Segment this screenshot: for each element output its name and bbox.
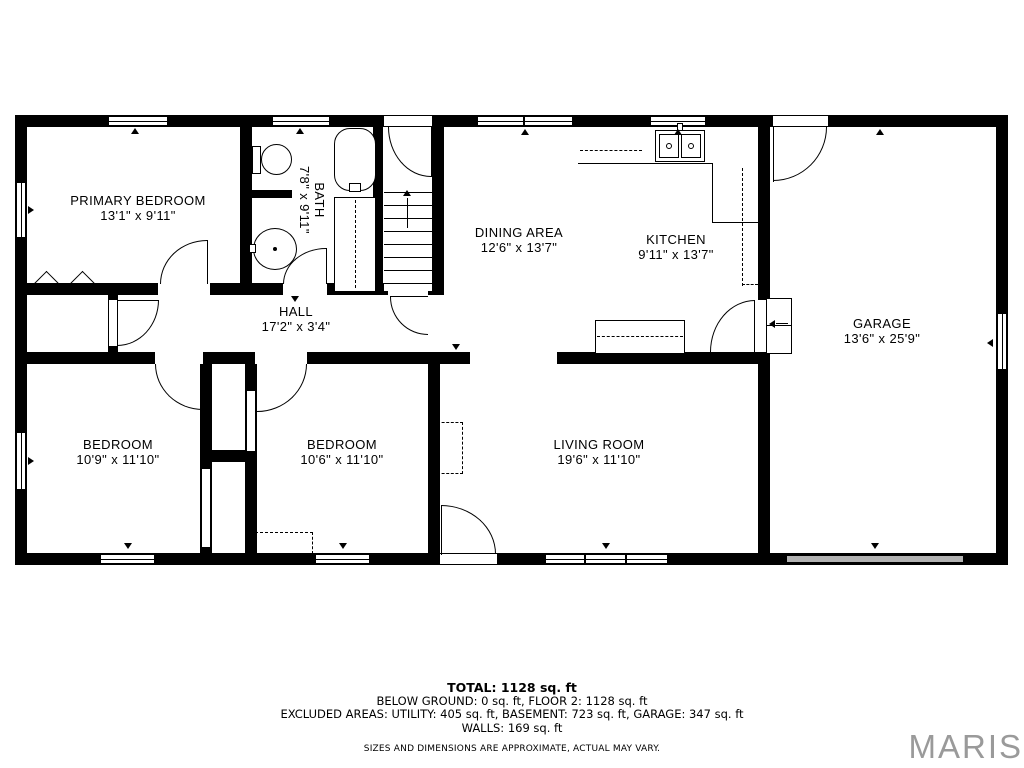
door-arc — [390, 297, 428, 335]
summary-line-3: EXCLUDED AREAS: UTILITY: 405 sq. ft, BAS… — [0, 708, 1024, 722]
hall-closet-door-opening — [109, 300, 117, 346]
rear-door-opening — [384, 116, 432, 126]
toilet-bowl — [261, 144, 292, 175]
door-arc — [388, 127, 431, 177]
room-label-primary-bedroom: PRIMARY BEDROOM 13'1" x 9'11" — [70, 193, 206, 223]
counter-edge — [712, 222, 758, 223]
upper-cabinet-dashed — [742, 168, 743, 286]
linen-closet-door — [355, 200, 356, 288]
room-dims: 9'11" x 13'7" — [638, 247, 714, 262]
room-label-kitchen: KITCHEN 9'11" x 13'7" — [638, 232, 714, 262]
room-dims: 7'8" x 9'11" — [297, 166, 312, 234]
wall-closet-divider — [212, 450, 245, 462]
tick-mark — [124, 543, 132, 549]
area-summary: TOTAL: 1128 sq. ft BELOW GROUND: 0 sq. f… — [0, 681, 1024, 757]
sink-drain — [688, 143, 694, 149]
sink-drain — [666, 143, 672, 149]
tick-mark — [602, 543, 610, 549]
door-leaf — [207, 240, 208, 284]
closet-sliding-door — [246, 390, 256, 452]
room-dims: 10'6" x 11'10" — [300, 452, 383, 467]
toilet-tank — [252, 146, 261, 174]
wall-segment — [240, 283, 283, 295]
tick-mark — [452, 344, 460, 350]
staircase — [384, 192, 432, 291]
window — [545, 554, 668, 564]
living-builtin-dashed — [437, 422, 463, 474]
room-name: DINING AREA — [475, 225, 563, 240]
window — [16, 432, 26, 490]
closet-rod-symbol — [29, 271, 64, 306]
summary-disclaimer: SIZES AND DIMENSIONS ARE APPROXIMATE, AC… — [0, 743, 1024, 757]
door-arc — [773, 127, 827, 181]
room-name: HALL — [262, 304, 331, 319]
room-label-bedroom-mid: BEDROOM 10'6" x 11'10" — [300, 437, 383, 467]
room-name: GARAGE — [844, 316, 921, 331]
room-label-garage: GARAGE 13'6" x 25'9" — [844, 316, 921, 346]
stair-up-arrow — [403, 190, 411, 196]
summary-line-2: BELOW GROUND: 0 sq. ft, FLOOR 2: 1128 sq… — [0, 695, 1024, 709]
bathtub-faucet — [349, 183, 361, 192]
tick-mark — [521, 129, 529, 135]
window-mullion — [523, 116, 525, 126]
garage-service-door-opening — [773, 116, 828, 126]
room-label-bedroom-left: BEDROOM 10'9" x 11'10" — [76, 437, 159, 467]
upper-cabinet-dashed — [742, 284, 758, 285]
window — [16, 182, 26, 238]
room-label-bath: BATH 7'8" x 9'11" — [297, 166, 327, 234]
upper-cabinet-dashed — [580, 150, 642, 151]
tick-mark — [291, 296, 299, 302]
door-arc — [257, 364, 307, 412]
door-leaf — [326, 248, 327, 284]
kitchen-island — [595, 320, 685, 354]
room-name: LIVING ROOM — [553, 437, 644, 452]
bath-sink-tap — [249, 244, 256, 253]
room-dims: 17'2" x 3'4" — [262, 319, 331, 334]
window — [477, 116, 573, 126]
window — [272, 116, 330, 126]
window — [997, 313, 1007, 370]
tick-mark — [674, 129, 682, 135]
room-dims: 10'9" x 11'10" — [76, 452, 159, 467]
window — [108, 116, 168, 126]
bath-sink-drain — [273, 247, 277, 251]
floor-plan-page: PRIMARY BEDROOM 13'1" x 9'11" BATH 7'8" … — [0, 0, 1024, 768]
window — [100, 554, 155, 564]
room-name: KITCHEN — [638, 232, 714, 247]
tick-mark — [28, 457, 34, 465]
garage-overhead-door — [786, 555, 964, 563]
tick-mark — [131, 128, 139, 134]
bedroom2-closet-dashed — [255, 532, 313, 554]
room-dims: 13'1" x 9'11" — [70, 208, 206, 223]
wall-bath-mid — [240, 190, 292, 198]
living-entry-opening — [440, 554, 497, 564]
room-name: BATH — [312, 166, 327, 234]
wall-segment — [15, 352, 155, 364]
counter-edge — [578, 163, 712, 164]
door-arc — [441, 505, 496, 554]
garage-steps-arrow — [769, 320, 775, 328]
door-leaf — [431, 127, 432, 177]
kitchen-island-dashed — [597, 336, 683, 337]
room-dims: 19'6" x 11'10" — [553, 452, 644, 467]
tick-mark — [871, 543, 879, 549]
wall-stair-right — [432, 115, 444, 295]
stair-arrow-stem — [407, 198, 408, 228]
tick-mark — [28, 206, 34, 214]
door-arc — [155, 364, 203, 410]
room-dims: 12'6" x 13'7" — [475, 240, 563, 255]
wall-primary-bath — [240, 115, 252, 295]
door-arc — [160, 240, 207, 284]
room-label-living: LIVING ROOM 19'6" x 11'10" — [553, 437, 644, 467]
room-name: BEDROOM — [76, 437, 159, 452]
closet-sliding-door — [201, 468, 211, 548]
maris-logo: MARIS — [908, 728, 1023, 766]
counter-edge — [712, 163, 713, 223]
summary-line-4: WALLS: 169 sq. ft — [0, 722, 1024, 736]
summary-total: TOTAL: 1128 sq. ft — [0, 681, 1024, 695]
bathtub — [334, 128, 376, 191]
wall-segment — [203, 352, 255, 364]
door-arc — [117, 300, 159, 346]
wall-segment — [307, 352, 470, 364]
room-dims: 13'6" x 25'9" — [844, 331, 921, 346]
tick-mark — [987, 339, 993, 347]
window — [315, 554, 370, 564]
room-name: PRIMARY BEDROOM — [70, 193, 206, 208]
room-name: BEDROOM — [300, 437, 383, 452]
room-label-dining: DINING AREA 12'6" x 13'7" — [475, 225, 563, 255]
tick-mark — [339, 543, 347, 549]
door-arc — [710, 300, 755, 352]
window-mullion — [625, 554, 627, 564]
tick-mark — [876, 129, 884, 135]
closet-rod-symbol — [65, 271, 100, 306]
room-label-hall: HALL 17'2" x 3'4" — [262, 304, 331, 334]
garage-steps-arrow-stem — [776, 323, 788, 324]
tick-mark — [296, 128, 304, 134]
window-mullion — [584, 554, 586, 564]
